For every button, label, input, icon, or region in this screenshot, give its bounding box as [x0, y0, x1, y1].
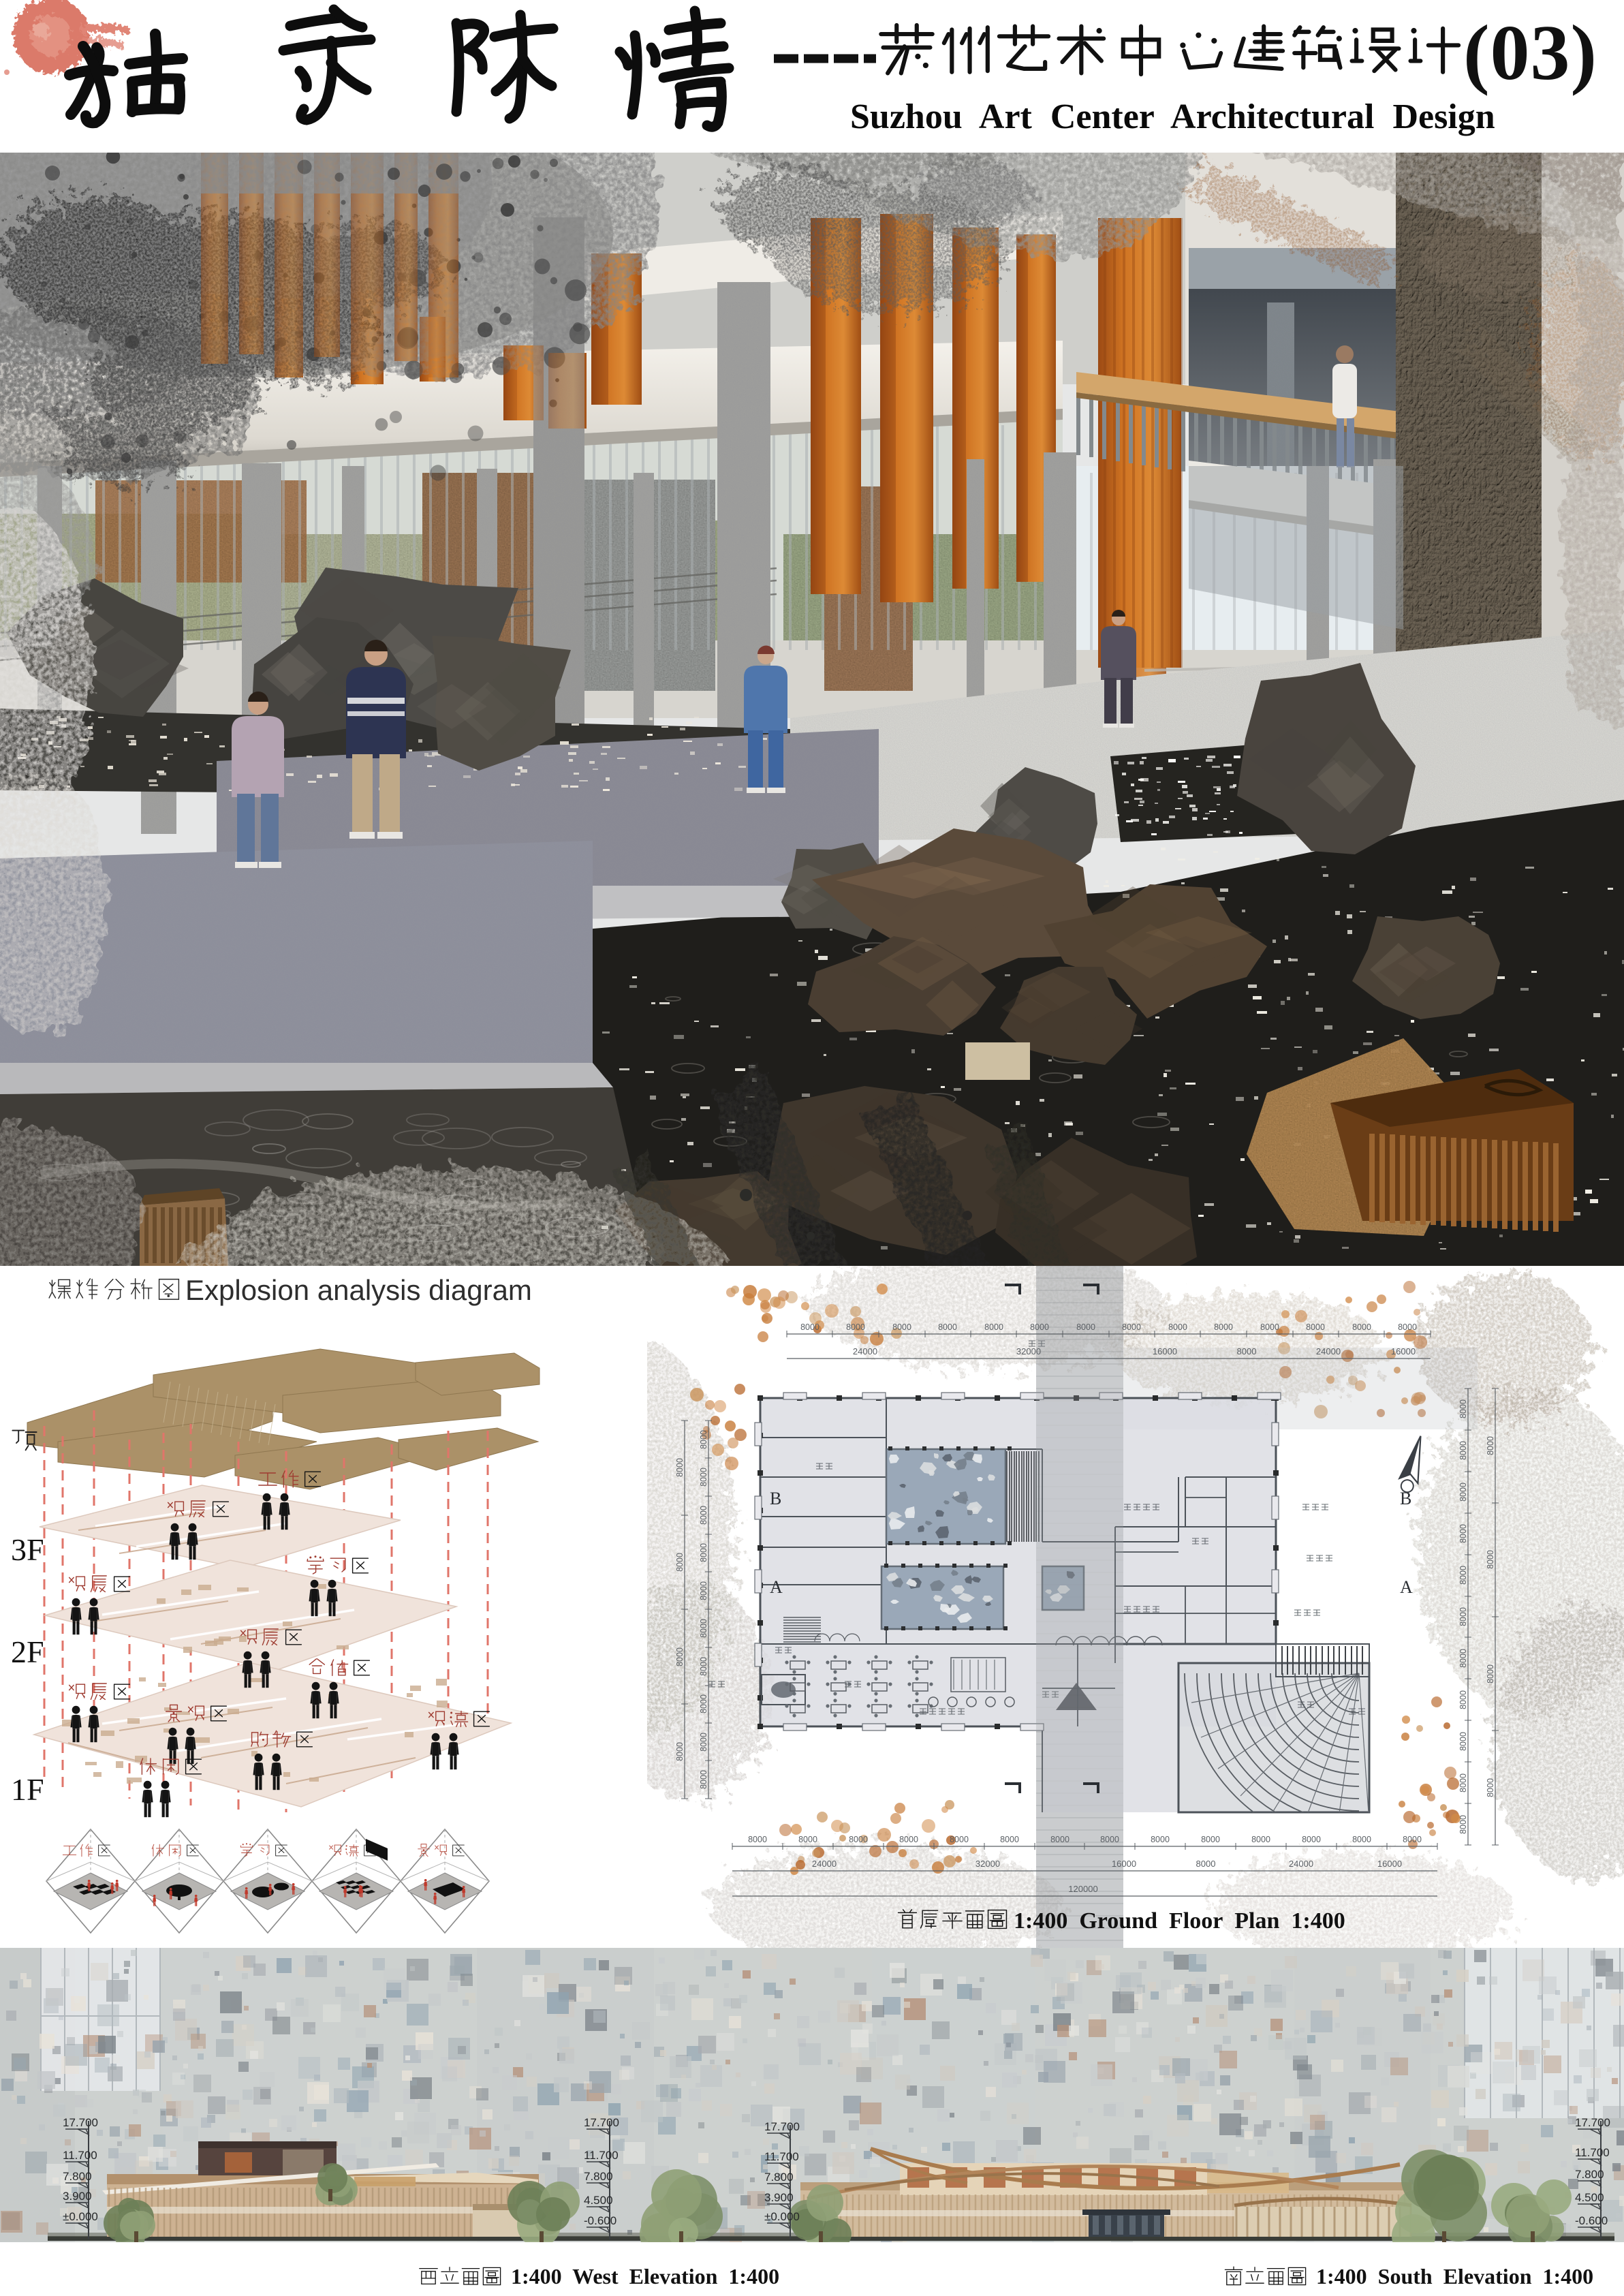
svg-text:8000: 8000: [1196, 1859, 1216, 1869]
svg-text:8000: 8000: [675, 1647, 685, 1666]
svg-text:8000: 8000: [1306, 1322, 1325, 1332]
svg-text:8000: 8000: [1260, 1322, 1279, 1332]
svg-text:11.700: 11.700: [1575, 2146, 1610, 2159]
svg-text:8000: 8000: [1458, 1649, 1468, 1668]
svg-text:8000: 8000: [849, 1835, 868, 1844]
svg-text:7.800: 7.800: [63, 2170, 92, 2183]
svg-text:8000: 8000: [699, 1581, 708, 1600]
svg-text:±0.000: ±0.000: [764, 2210, 800, 2223]
svg-text:1:400 South Elevation 1:400: 1:400 South Elevation 1:400: [1316, 2264, 1593, 2289]
svg-text:8000: 8000: [1352, 1835, 1371, 1844]
svg-text:8000: 8000: [699, 1430, 708, 1449]
svg-text:8000: 8000: [1214, 1322, 1233, 1332]
svg-text:8000: 8000: [1486, 1664, 1495, 1684]
svg-text:2F: 2F: [11, 1634, 44, 1669]
svg-text:8000: 8000: [699, 1694, 708, 1713]
svg-text:24000: 24000: [1316, 1346, 1341, 1356]
svg-text:8000: 8000: [675, 1458, 685, 1477]
svg-text:8000: 8000: [1076, 1322, 1095, 1332]
svg-text:8000: 8000: [1458, 1566, 1468, 1585]
svg-text:-0.600: -0.600: [1575, 2214, 1608, 2227]
svg-text:8000: 8000: [675, 1553, 685, 1572]
svg-text:8000: 8000: [1352, 1322, 1371, 1332]
svg-text:7.800: 7.800: [584, 2170, 613, 2183]
svg-text:A: A: [770, 1577, 783, 1597]
svg-text:4.500: 4.500: [584, 2194, 613, 2207]
svg-text:16000: 16000: [1391, 1346, 1416, 1356]
svg-text:24000: 24000: [812, 1859, 837, 1869]
svg-text:17.700: 17.700: [584, 2116, 619, 2129]
svg-text:120000: 120000: [1068, 1884, 1097, 1894]
svg-text:8000: 8000: [1458, 1483, 1468, 1502]
svg-text:3F: 3F: [11, 1532, 44, 1567]
svg-text:8000: 8000: [699, 1770, 708, 1789]
svg-text:8000: 8000: [699, 1619, 708, 1638]
svg-text:8000: 8000: [699, 1543, 708, 1562]
svg-text:8000: 8000: [1486, 1778, 1495, 1797]
svg-text:1:400 West Elevation 1:400: 1:400 West Elevation 1:400: [511, 2264, 779, 2289]
svg-text:1F: 1F: [11, 1772, 44, 1807]
svg-text:8000: 8000: [1458, 1815, 1468, 1834]
svg-text:17.700: 17.700: [63, 2116, 98, 2129]
svg-text:32000: 32000: [1016, 1346, 1041, 1356]
svg-text:8000: 8000: [699, 1733, 708, 1752]
svg-text:3.900: 3.900: [764, 2191, 794, 2204]
svg-text:8000: 8000: [1458, 1607, 1468, 1626]
svg-text:8000: 8000: [1201, 1835, 1220, 1844]
svg-text:8000: 8000: [699, 1468, 708, 1487]
svg-text:1:400 Ground Floor Plan 1:: 1:400 Ground Floor Plan 1:400: [1014, 1908, 1345, 1934]
svg-text:8000: 8000: [1000, 1835, 1019, 1844]
svg-text:24000: 24000: [853, 1346, 877, 1356]
svg-text:B: B: [770, 1489, 781, 1508]
svg-text:±0.000: ±0.000: [63, 2210, 98, 2223]
svg-text:8000: 8000: [699, 1657, 708, 1676]
svg-text:Explosion analysis diagram: Explosion analysis diagram: [185, 1274, 532, 1306]
svg-text:7.800: 7.800: [764, 2171, 794, 2184]
svg-text:3.900: 3.900: [63, 2190, 92, 2203]
svg-text:8000: 8000: [1458, 1524, 1468, 1543]
svg-text:16000: 16000: [1112, 1859, 1136, 1869]
svg-text:A: A: [1400, 1577, 1413, 1597]
svg-text:8000: 8000: [1251, 1835, 1270, 1844]
svg-text:8000: 8000: [1458, 1732, 1468, 1751]
svg-text:8000: 8000: [1486, 1550, 1495, 1569]
svg-text:-0.600: -0.600: [584, 2214, 616, 2227]
svg-text:8000: 8000: [938, 1322, 957, 1332]
svg-text:8000: 8000: [950, 1835, 969, 1844]
svg-text:8000: 8000: [1237, 1346, 1257, 1356]
svg-text:8000: 8000: [984, 1322, 1003, 1332]
svg-text:17.700: 17.700: [764, 2120, 800, 2133]
svg-text:8000: 8000: [1122, 1322, 1141, 1332]
svg-text:8000: 8000: [1398, 1322, 1417, 1332]
svg-text:24000: 24000: [1289, 1859, 1313, 1869]
svg-text:32000: 32000: [975, 1859, 1000, 1869]
svg-text:11.700: 11.700: [764, 2150, 799, 2163]
svg-text:8000: 8000: [892, 1322, 911, 1332]
svg-text:8000: 8000: [1302, 1835, 1321, 1844]
svg-text:7.800: 7.800: [1575, 2168, 1604, 2181]
svg-text:8000: 8000: [800, 1322, 819, 1332]
svg-text:8000: 8000: [798, 1835, 817, 1844]
svg-text:8000: 8000: [1403, 1835, 1422, 1844]
svg-text:8000: 8000: [1458, 1690, 1468, 1709]
svg-text:8000: 8000: [1100, 1835, 1119, 1844]
svg-text:(03): (03): [1463, 10, 1597, 97]
svg-text:8000: 8000: [1458, 1773, 1468, 1793]
svg-text:11.700: 11.700: [63, 2149, 97, 2162]
svg-text:8000: 8000: [748, 1835, 767, 1844]
svg-text:8000: 8000: [1486, 1436, 1495, 1455]
svg-text:8000: 8000: [1151, 1835, 1170, 1844]
svg-text:8000: 8000: [899, 1835, 918, 1844]
svg-text:8000: 8000: [675, 1742, 685, 1761]
svg-text:8000: 8000: [699, 1506, 708, 1525]
svg-text:8000: 8000: [1458, 1399, 1468, 1418]
svg-text:16000: 16000: [1153, 1346, 1177, 1356]
svg-text:8000: 8000: [1050, 1835, 1069, 1844]
svg-text:16000: 16000: [1377, 1859, 1402, 1869]
svg-text:8000: 8000: [846, 1322, 865, 1332]
svg-text:8000: 8000: [1458, 1441, 1468, 1460]
svg-text:8000: 8000: [1168, 1322, 1187, 1332]
svg-text:8000: 8000: [1030, 1322, 1049, 1332]
svg-text:4.500: 4.500: [1575, 2191, 1604, 2204]
svg-text:11.700: 11.700: [584, 2149, 619, 2162]
svg-text:17.700: 17.700: [1575, 2116, 1610, 2129]
